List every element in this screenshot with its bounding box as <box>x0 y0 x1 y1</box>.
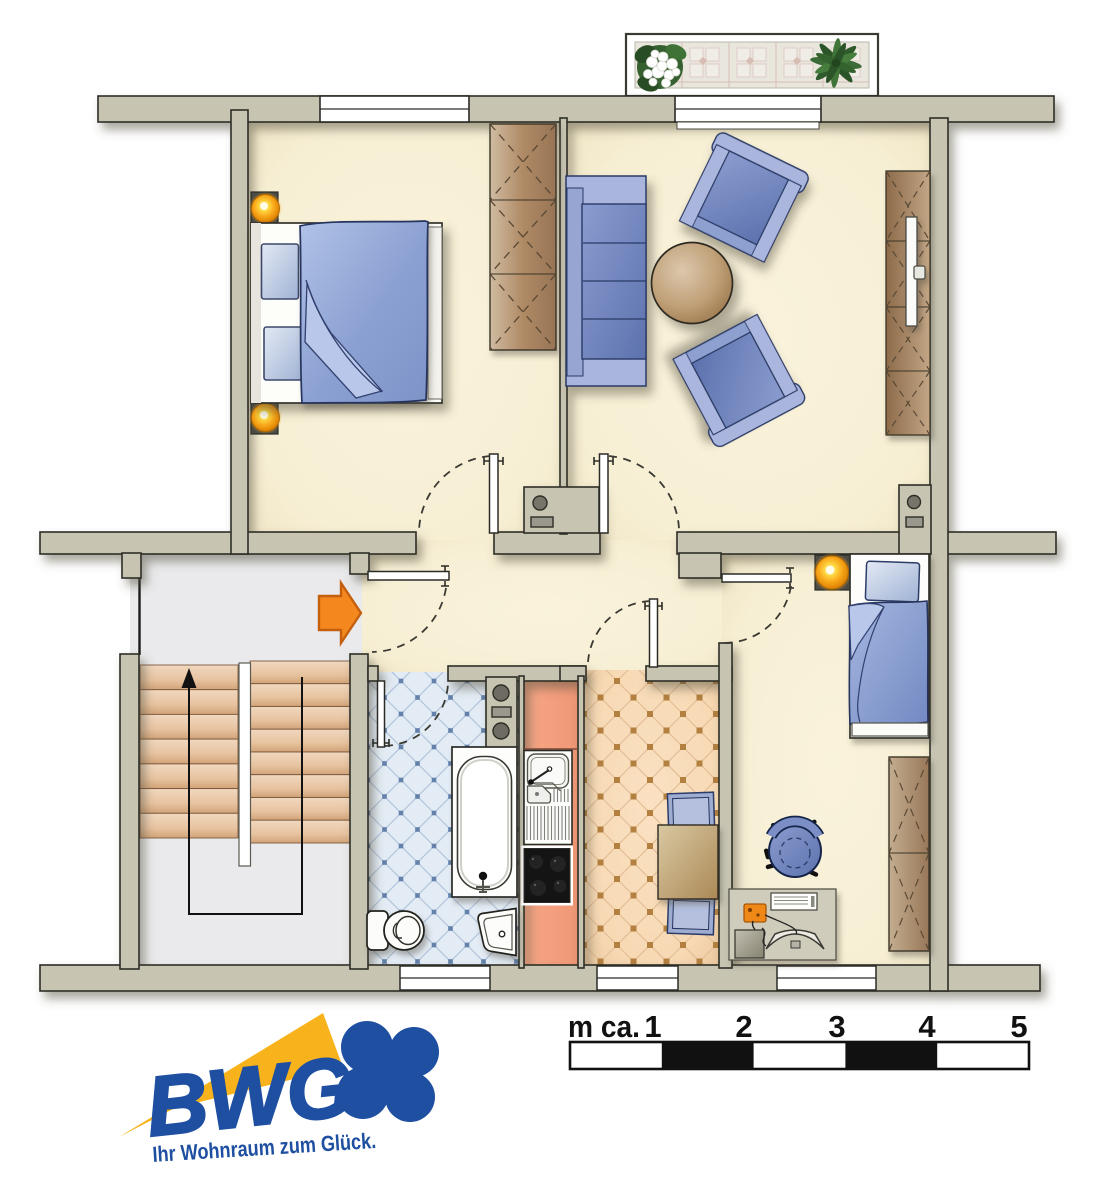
svg-text:1: 1 <box>644 1009 661 1044</box>
svg-text:m ca.: m ca. <box>568 1009 640 1044</box>
svg-text:5: 5 <box>1010 1009 1027 1044</box>
svg-text:4: 4 <box>918 1009 936 1044</box>
svg-text:2: 2 <box>735 1009 752 1044</box>
svg-text:3: 3 <box>828 1009 845 1044</box>
